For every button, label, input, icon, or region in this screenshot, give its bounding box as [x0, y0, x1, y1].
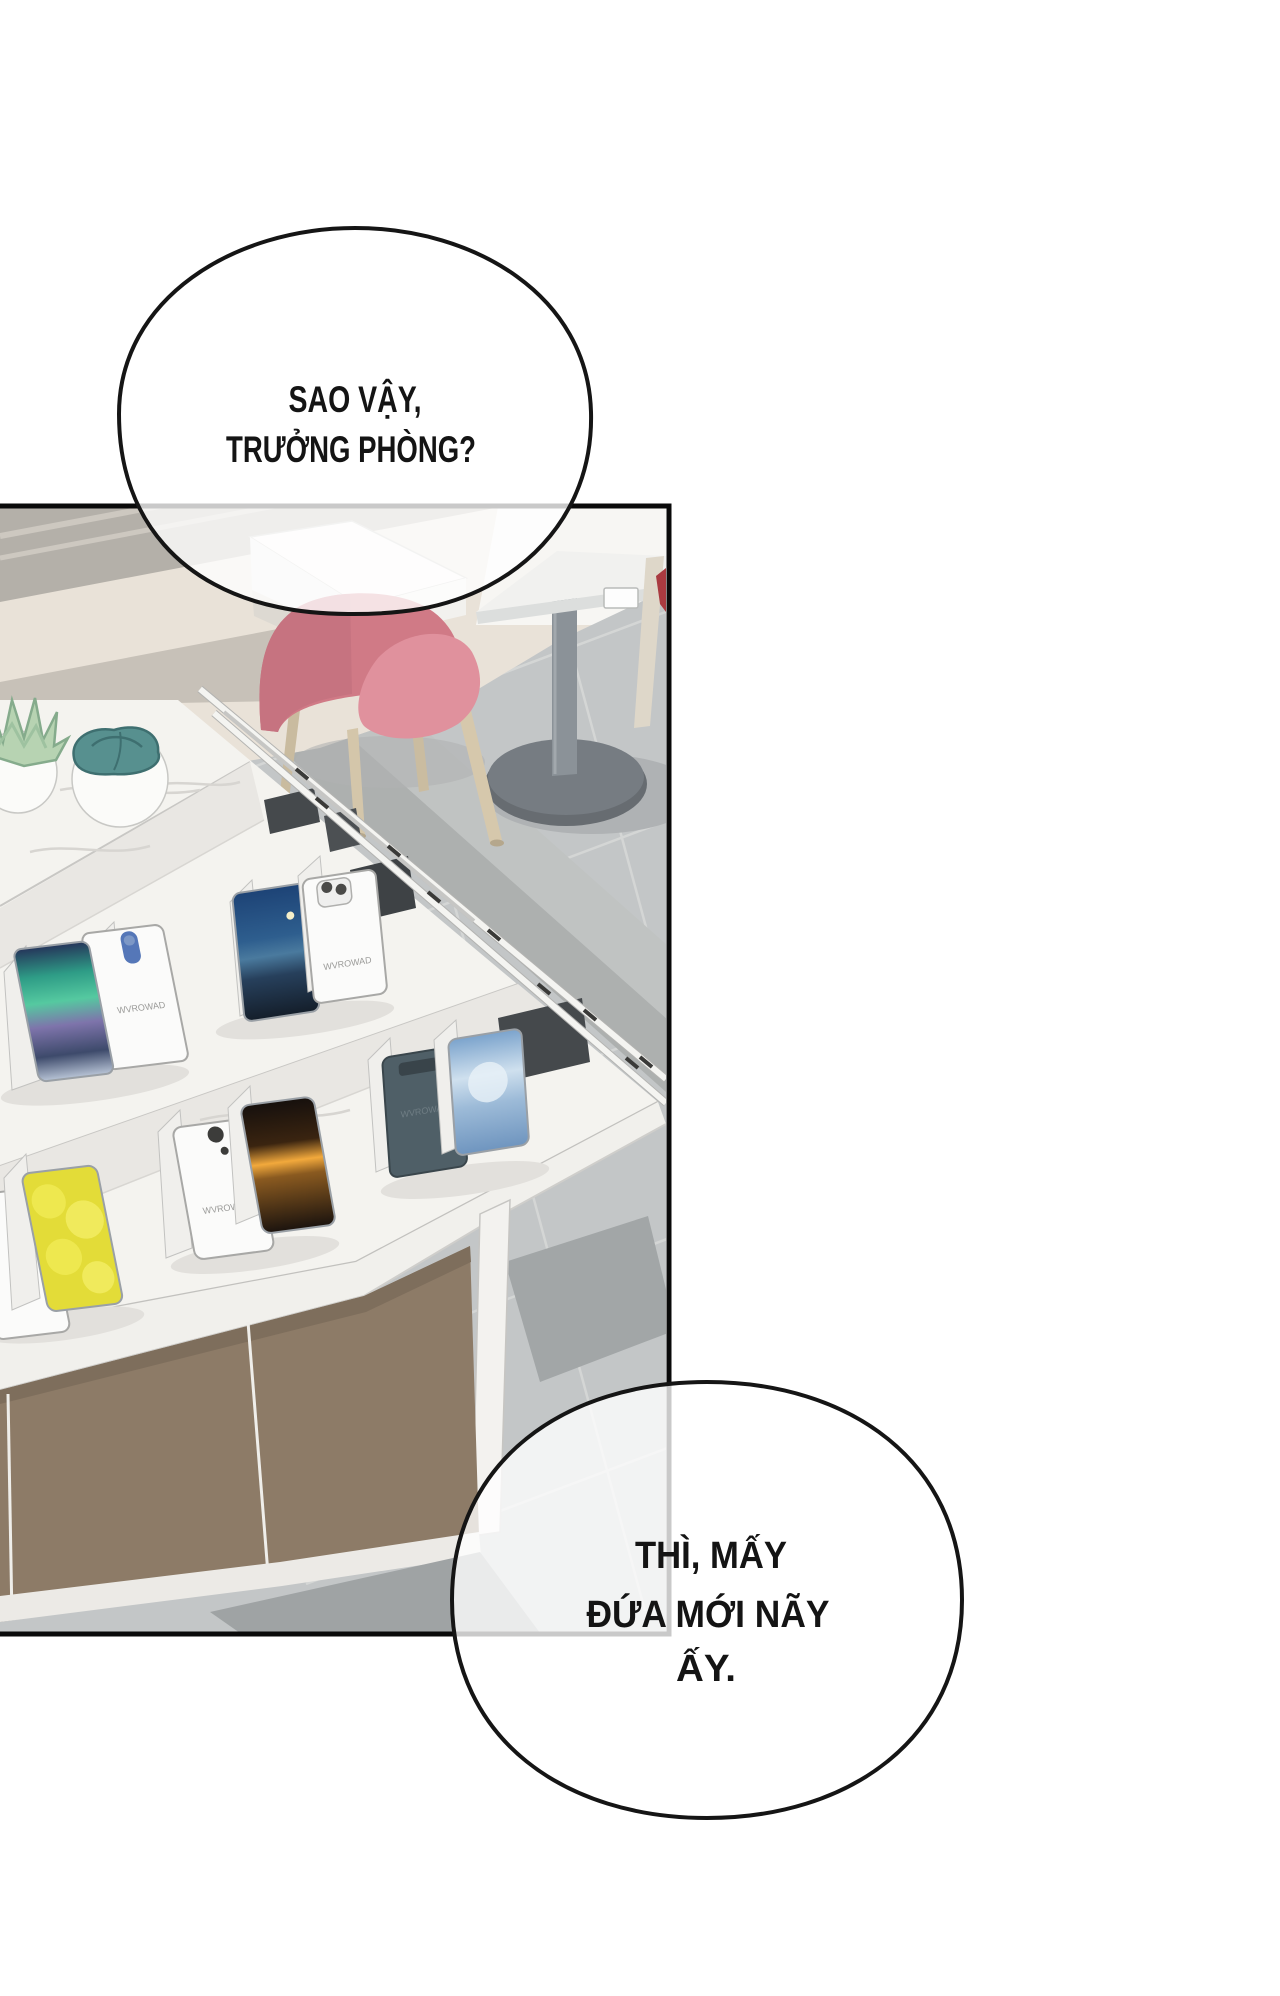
- svg-text:TRƯỞNG PHÒNG?: TRƯỞNG PHÒNG?: [226, 428, 476, 470]
- svg-text:THÌ, MẤY: THÌ, MẤY: [635, 1533, 787, 1577]
- svg-text:ẤY.: ẤY.: [676, 1646, 736, 1690]
- svg-text:ĐỨA MỚI NÃY: ĐỨA MỚI NÃY: [587, 1592, 830, 1636]
- svg-text:SAO VẬY,: SAO VẬY,: [289, 378, 422, 420]
